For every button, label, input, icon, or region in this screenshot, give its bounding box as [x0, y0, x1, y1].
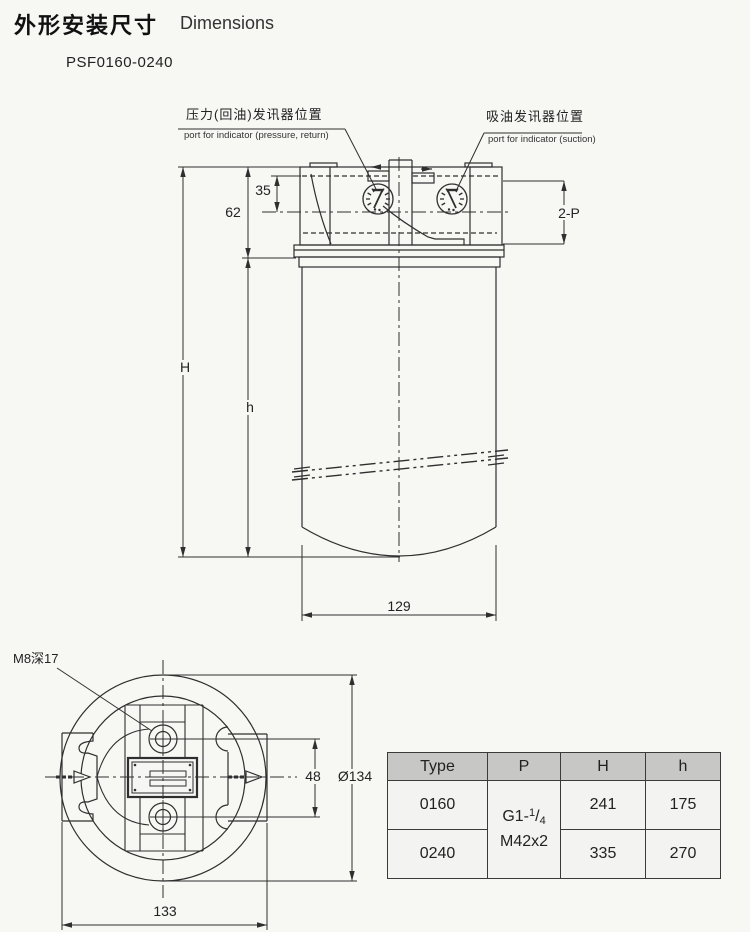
cell-H-0240: 335: [561, 830, 646, 879]
model-number: PSF0160-0240: [66, 54, 173, 71]
dim-H: H: [171, 360, 199, 375]
catalog-page: 外形安装尺寸 Dimensions PSF0160-0240 压力(回油)发讯器…: [0, 0, 750, 932]
thread-sub: 4: [540, 815, 546, 827]
pressure-port-label-zh: 压力(回油)发讯器位置: [186, 104, 323, 123]
cell-type-0160: 0160: [388, 781, 488, 830]
dim-129: 129: [379, 598, 419, 614]
bottom-dimensions: [62, 675, 357, 930]
filter-bowl: [292, 245, 508, 556]
table-row: 0160 G1-1/4 M42x2 241 175: [388, 781, 721, 830]
suction-port-label-zh: 吸油发讯器位置: [486, 106, 584, 125]
cell-thread-spec: G1-1/4 M42x2: [488, 781, 561, 879]
spec-table-header-row: Type P H h: [388, 753, 721, 781]
filter-head: [262, 157, 512, 562]
bottom-view: [45, 660, 357, 930]
header-H: H: [561, 753, 646, 781]
header-P: P: [488, 753, 561, 781]
dim-h: h: [237, 400, 263, 415]
suction-port-label-en: port for indicator (suction): [488, 134, 596, 145]
spec-table: Type P H h 0160 G1-1/4 M42x2 241 175 024…: [387, 752, 721, 879]
dim-M8: M8深17: [13, 648, 73, 667]
dim-48: 48: [297, 769, 329, 784]
thread-base: G1-: [502, 808, 529, 825]
pressure-indicator-gauge-icon: [363, 184, 393, 214]
cell-type-0240: 0240: [388, 830, 488, 879]
cell-H-0160: 241: [561, 781, 646, 830]
thread-line2: M42x2: [500, 833, 548, 850]
dim-2P: 2-P: [550, 205, 588, 221]
dim-62: 62: [222, 204, 244, 220]
front-view: [178, 129, 582, 621]
dim-35: 35: [252, 182, 274, 198]
page-title-zh: 外形安装尺寸: [14, 8, 158, 40]
dim-133: 133: [145, 903, 185, 919]
header-type: Type: [388, 753, 488, 781]
header-h: h: [646, 753, 721, 781]
dim-134: Ø134: [331, 769, 379, 784]
cell-h-0160: 175: [646, 781, 721, 830]
suction-indicator-gauge-icon: [437, 184, 467, 214]
page-title-en: Dimensions: [180, 13, 274, 34]
pressure-port-label-en: port for indicator (pressure, return): [184, 130, 329, 141]
front-dimensions: [178, 167, 564, 621]
cell-h-0240: 270: [646, 830, 721, 879]
